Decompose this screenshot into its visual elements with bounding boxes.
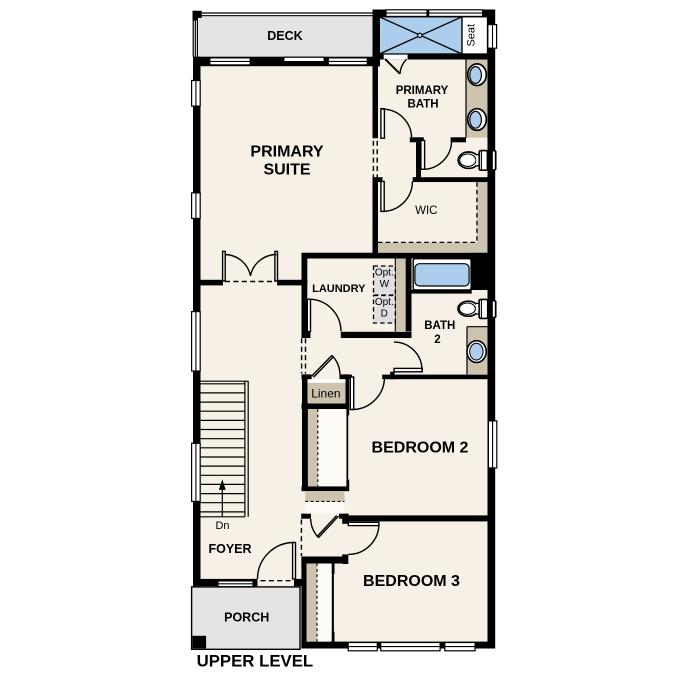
svg-text:PORCH: PORCH [224,610,269,624]
svg-text:Seat: Seat [466,24,478,47]
svg-text:W: W [380,279,390,290]
svg-text:Dn: Dn [215,520,229,532]
svg-text:SUITE: SUITE [263,162,310,179]
svg-text:UPPER LEVEL: UPPER LEVEL [197,652,314,671]
svg-text:Opt.: Opt. [375,297,394,308]
svg-text:WIC: WIC [415,205,437,217]
svg-text:BATH: BATH [407,99,438,111]
svg-text:DECK: DECK [267,29,302,43]
svg-text:PRIMARY: PRIMARY [250,143,324,160]
svg-text:LAUNDRY: LAUNDRY [312,283,366,295]
svg-text:PRIMARY: PRIMARY [396,85,449,97]
svg-text:BEDROOM 3: BEDROOM 3 [363,573,460,590]
svg-text:2: 2 [434,334,440,346]
svg-text:FOYER: FOYER [208,542,251,556]
svg-text:Opt.: Opt. [375,268,394,279]
svg-text:BATH: BATH [424,320,455,332]
svg-text:D: D [381,309,388,320]
svg-text:Linen: Linen [311,387,340,401]
svg-text:BEDROOM 2: BEDROOM 2 [372,440,469,457]
